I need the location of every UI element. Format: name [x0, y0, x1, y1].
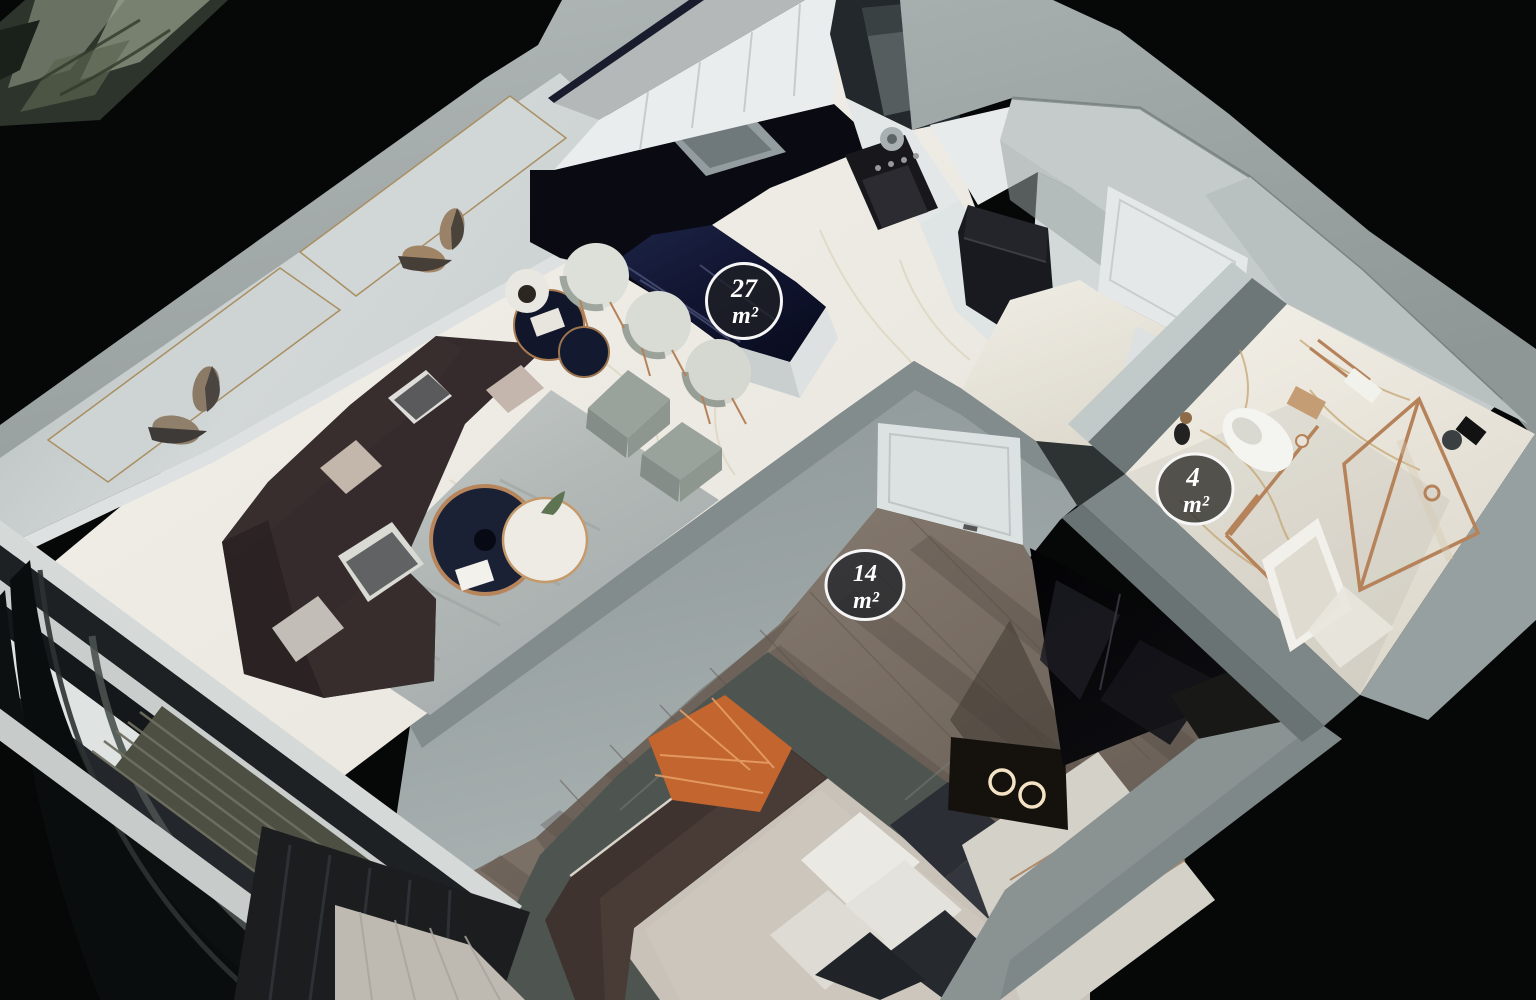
svg-text:m²: m²: [853, 588, 880, 614]
svg-text:4: 4: [1185, 462, 1200, 492]
svg-text:m²: m²: [1183, 492, 1210, 518]
svg-text:14: 14: [853, 561, 877, 587]
svg-text:27: 27: [730, 274, 758, 303]
svg-text:m²: m²: [732, 303, 759, 329]
